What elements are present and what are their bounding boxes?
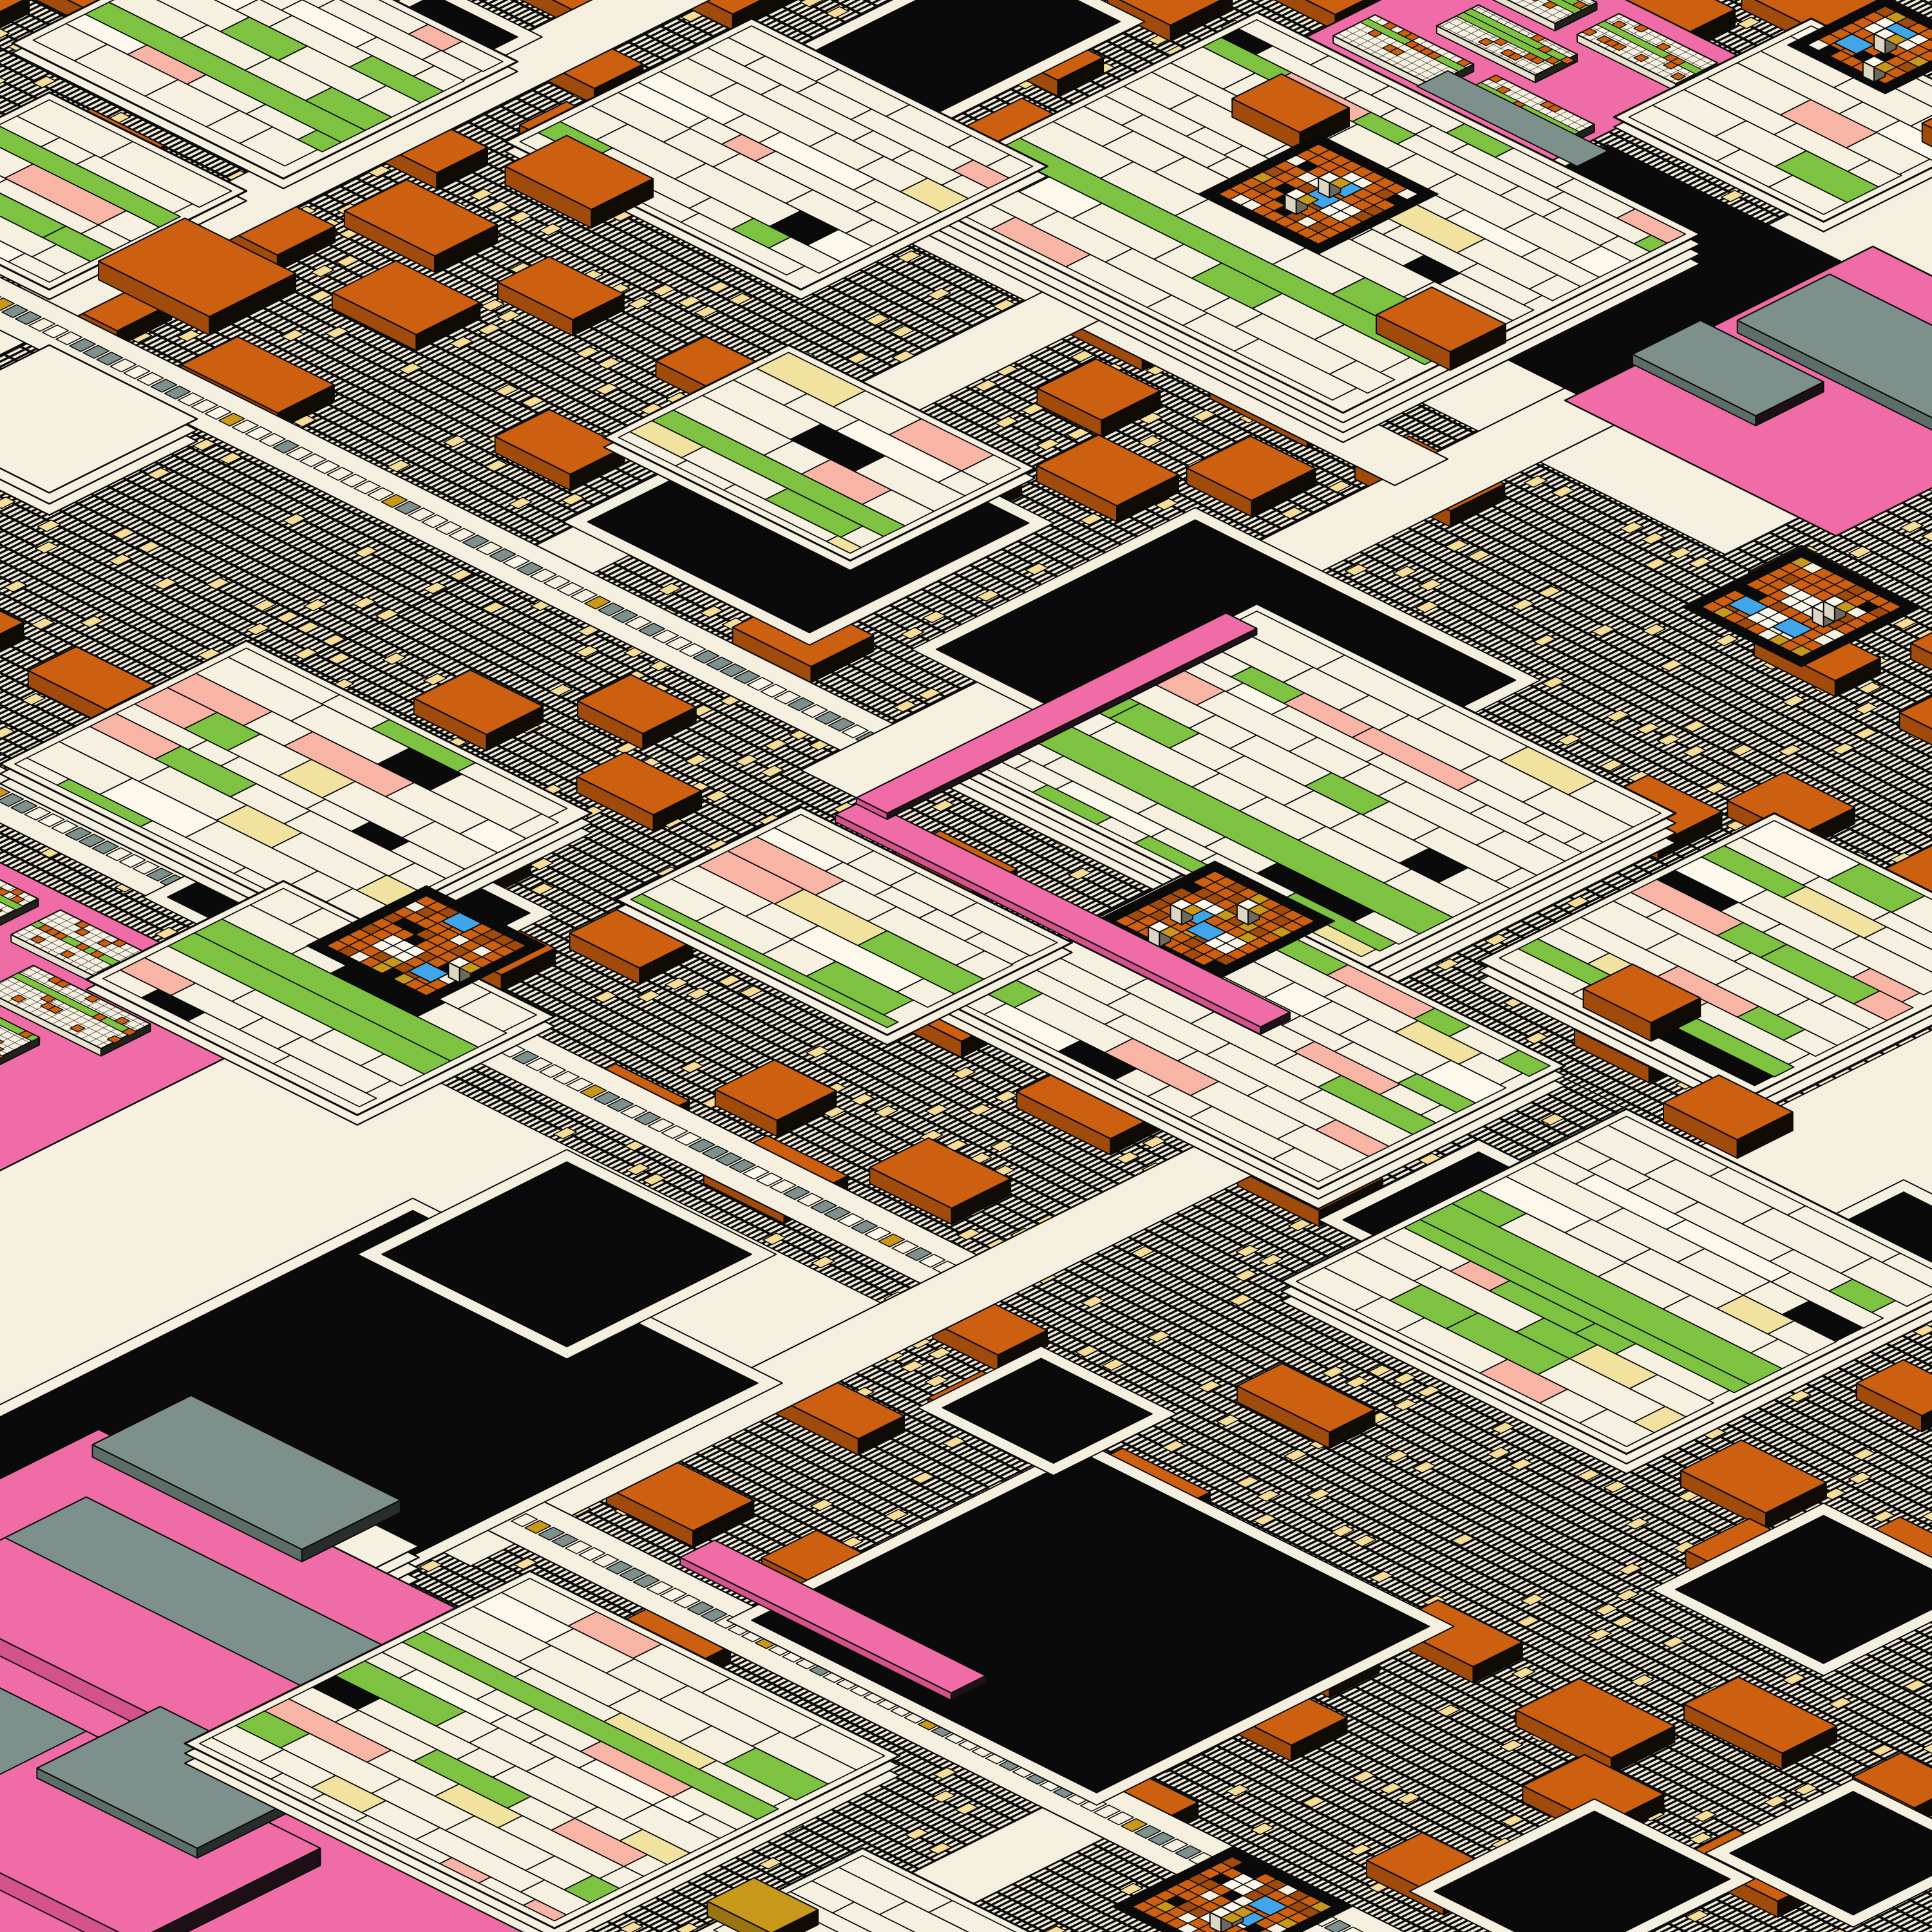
artwork-stage [0, 0, 1932, 1932]
isometric-circuit-artwork [0, 0, 1932, 1932]
